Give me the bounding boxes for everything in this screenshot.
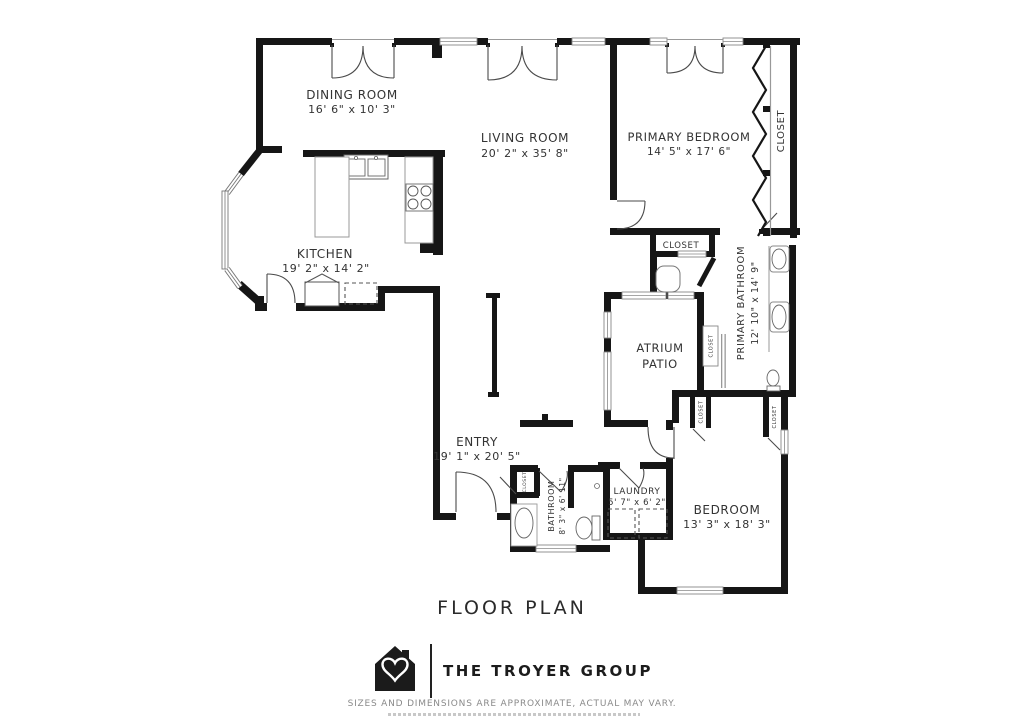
refrigerator: [305, 274, 339, 306]
primary-vanity: [769, 246, 789, 352]
fine-print-line: [388, 713, 640, 716]
primary-bedroom-label: PRIMARY BEDROOM: [627, 130, 750, 144]
bath-closet-label: CLOSET: [522, 471, 528, 492]
window-top-4: [723, 38, 743, 45]
atrium-window-left1: [604, 312, 611, 338]
laundry-dims: 5' 7" x 6' 2": [608, 498, 666, 508]
atrium-mini-closet-label: CLOSET: [709, 334, 715, 357]
primary-closet-bifold: [753, 42, 771, 236]
kitchen-peninsula: [315, 157, 349, 237]
fixtures: [305, 42, 789, 546]
bathroom-sink: [511, 504, 537, 546]
page-title: FLOOR PLAN: [0, 597, 1024, 619]
front-door: [456, 472, 496, 512]
disclaimer-text: SIZES AND DIMENSIONS ARE APPROXIMATE, AC…: [0, 699, 1024, 709]
mini-closet-a-label: CLOSET: [699, 400, 705, 423]
laundry-door: [619, 468, 644, 488]
stove: [406, 184, 433, 211]
window-top-2: [572, 38, 605, 45]
primary-bedroom-door: [617, 201, 645, 229]
shower-glass: [721, 334, 726, 388]
entry-dims: 19' 1" x 20' 5": [433, 450, 521, 463]
kitchen-dims: 19' 2" x 14' 2": [282, 262, 370, 275]
bathroom-toilet: [576, 516, 600, 540]
bathtub: [656, 266, 680, 292]
closet-shelf: [678, 251, 706, 257]
bedroom-label: BEDROOM: [694, 503, 761, 517]
primary-bedroom-dims: 14' 5" x 17' 6": [647, 146, 731, 158]
mini-closet-b-label: CLOSET: [772, 405, 778, 428]
bay-window-lower: [227, 269, 240, 287]
pantry: [345, 283, 377, 304]
window-top-1: [440, 38, 477, 45]
floor-plan-page: DINING ROOM 16' 6" x 10' 3" LIVING ROOM …: [0, 0, 1024, 724]
atrium-window-top2: [668, 292, 694, 299]
company-name: THE TROYER GROUP: [443, 662, 653, 680]
window-top-3: [650, 38, 667, 45]
bedroom-window-bottom: [677, 587, 723, 594]
living-room-label: LIVING ROOM: [481, 131, 569, 145]
mini-closet-a-door: [693, 429, 705, 441]
living-room-dims: 20' 2" x 35' 8": [481, 147, 569, 160]
atrium-patio-label-2: PATIO: [642, 357, 678, 371]
bedroom-hall-door: [648, 427, 674, 459]
kitchen-label: KITCHEN: [297, 247, 353, 261]
atrium-patio-label-1: ATRIUM: [636, 341, 683, 355]
primary-bathroom-label: PRIMARY BATHROOM: [736, 246, 747, 360]
dining-room-label: DINING ROOM: [306, 88, 398, 102]
bathroom-window: [536, 545, 576, 552]
atrium-window-top: [622, 292, 666, 299]
brand-logo: THE TROYER GROUP: [0, 643, 1024, 699]
house-heart-icon: [371, 643, 419, 699]
floor-plan-drawing: DINING ROOM 16' 6" x 10' 3" LIVING ROOM …: [0, 0, 1024, 596]
entry-label: ENTRY: [456, 435, 498, 449]
tp-holder: [595, 484, 600, 489]
primary-closet-label: CLOSET: [776, 109, 787, 152]
primary-bathroom-dims: 12' 10" x 14' 9": [750, 261, 761, 345]
bay-window-center: [222, 191, 228, 269]
bathroom-label: BATHROOM: [547, 480, 556, 531]
primary-bedroom-french-doors: [667, 45, 723, 73]
logo-divider: [430, 644, 432, 698]
bathroom-dims: 8' 3" x 6' 11": [558, 477, 567, 534]
atrium-window-left2: [604, 352, 611, 410]
bedroom-window-right: [781, 430, 788, 454]
primary-toilet: [767, 370, 780, 391]
hall-closet-label: CLOSET: [663, 241, 700, 251]
dining-french-doors: [332, 45, 394, 78]
dining-room-dims: 16' 6" x 10' 3": [308, 103, 396, 116]
kitchen-sink: [344, 155, 388, 179]
bedroom-dims: 13' 3" x 18' 3": [683, 518, 771, 531]
living-french-doors: [488, 45, 557, 80]
laundry-label: LAUNDRY: [613, 487, 660, 497]
mini-closet-b-door: [768, 438, 780, 450]
kitchen-door: [267, 274, 295, 303]
bay-window-upper: [227, 174, 241, 193]
